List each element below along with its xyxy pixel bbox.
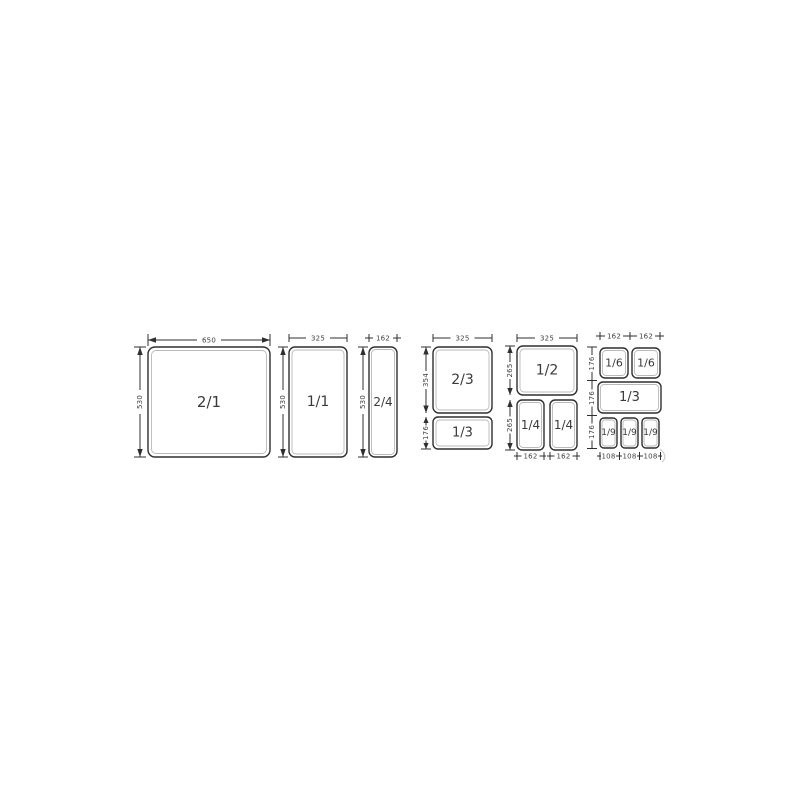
dim-label: 650	[202, 337, 216, 345]
column-gn-1-1: 325 530 1/1	[278, 334, 347, 458]
pan-1-4-label: 1/4	[554, 418, 573, 432]
dim-top-width: 325	[517, 334, 577, 343]
dim-bottom-width-1-9-c: 108	[640, 452, 662, 461]
pan-1-1: 1/1	[289, 347, 347, 457]
column-gn-1-2-1-4: 325 265 265 1/2 1/4	[505, 334, 580, 461]
pan-2-3-label: 2/3	[451, 372, 474, 388]
dim-top-width-right: 162	[630, 332, 664, 341]
dim-label: 176	[588, 391, 596, 405]
dim-left-heights: 176 176 176	[587, 347, 597, 449]
pan-2-1: 2/1	[148, 347, 270, 457]
pan-1-3-wide: 1/3	[598, 382, 661, 413]
dim-label: 325	[540, 335, 554, 343]
dim-left-height-1-3: 176	[421, 417, 431, 449]
pan-1-4-label: 1/4	[521, 418, 540, 432]
dim-top-width-left: 162	[596, 332, 630, 341]
dim-label: 265	[506, 418, 514, 432]
pan-1-6-right: 1/6	[632, 348, 660, 378]
gastronorm-size-chart: 650 530 2/1 325	[0, 0, 800, 800]
pan-1-3: 1/3	[433, 417, 492, 449]
dim-bottom-width-1-9-b: 108	[620, 452, 640, 461]
dim-label: 162	[376, 335, 390, 343]
pan-1-3-label: 1/3	[452, 426, 473, 441]
dim-left-height-1-2: 265	[505, 346, 515, 395]
dim-left-height: 530	[358, 347, 368, 457]
dim-bottom-width-1-9-a: 108	[597, 452, 620, 461]
dim-label: 325	[311, 335, 325, 343]
pan-2-4-label: 2/4	[373, 395, 392, 409]
dim-label: 265	[506, 364, 514, 378]
dim-label: 530	[136, 395, 144, 409]
pan-1-3-label: 1/3	[619, 390, 640, 405]
dim-left-height: 530	[278, 347, 288, 457]
pan-1-9-c: 1/9	[642, 418, 659, 448]
dim-top-width: 650	[148, 334, 270, 346]
pan-1-9-label: 1/9	[601, 428, 616, 438]
dim-left-height-2-3: 354	[421, 347, 431, 413]
pan-2-3: 2/3	[433, 347, 492, 413]
dim-label: 354	[422, 373, 430, 387]
pan-1-9-a: 1/9	[600, 418, 617, 448]
pan-1-2-label: 1/2	[536, 363, 559, 379]
pan-2-1-label: 2/1	[197, 393, 221, 411]
column-gn-2-4: 162 530 2/4	[358, 334, 401, 458]
pan-2-4: 2/4	[369, 347, 397, 457]
dim-top-width: 325	[289, 334, 347, 343]
dim-label: 530	[359, 395, 367, 409]
pan-1-2: 1/2	[517, 346, 577, 395]
pan-1-1-label: 1/1	[307, 394, 330, 410]
dim-label: 108	[623, 453, 637, 461]
pan-1-6-left: 1/6	[600, 348, 628, 378]
dim-label: 325	[456, 335, 470, 343]
pan-1-9-label: 1/9	[622, 428, 637, 438]
dim-label: 162	[639, 333, 653, 341]
dim-label: 162	[524, 453, 538, 461]
dim-label: 108	[644, 453, 658, 461]
dim-label: 162	[557, 453, 571, 461]
pan-1-9-label: 1/9	[643, 428, 658, 438]
dim-bottom-width-1-4-left: 162	[514, 452, 546, 461]
dim-label: 108	[602, 453, 616, 461]
pan-1-6-label: 1/6	[605, 357, 623, 370]
column-gn-2-1: 650 530 2/1	[134, 334, 270, 457]
dim-label: 162	[607, 333, 621, 341]
dim-top-width: 162	[365, 334, 401, 343]
dim-bottom-width-1-4-right: 162	[547, 452, 580, 461]
dim-label: 530	[279, 395, 287, 409]
dim-label: 176	[422, 426, 430, 440]
pan-1-6-label: 1/6	[637, 357, 655, 370]
dim-label: 176	[588, 425, 596, 439]
dim-left-height-1-4: 265	[505, 400, 515, 450]
dim-top-width: 325	[433, 334, 492, 343]
pan-1-4-left: 1/4	[517, 400, 544, 450]
column-gn-2-3-1-3: 325 354 176 2/3 1/3	[421, 334, 492, 450]
column-gn-1-6-1-3-1-9: 162 162 176 176 176 1/6	[587, 332, 665, 463]
dim-left-height: 530	[134, 347, 146, 457]
pan-1-4-right: 1/4	[550, 400, 577, 450]
pan-1-9-b: 1/9	[621, 418, 638, 448]
diagram-canvas: 650 530 2/1 325	[0, 0, 800, 800]
dim-label: 176	[588, 356, 596, 370]
